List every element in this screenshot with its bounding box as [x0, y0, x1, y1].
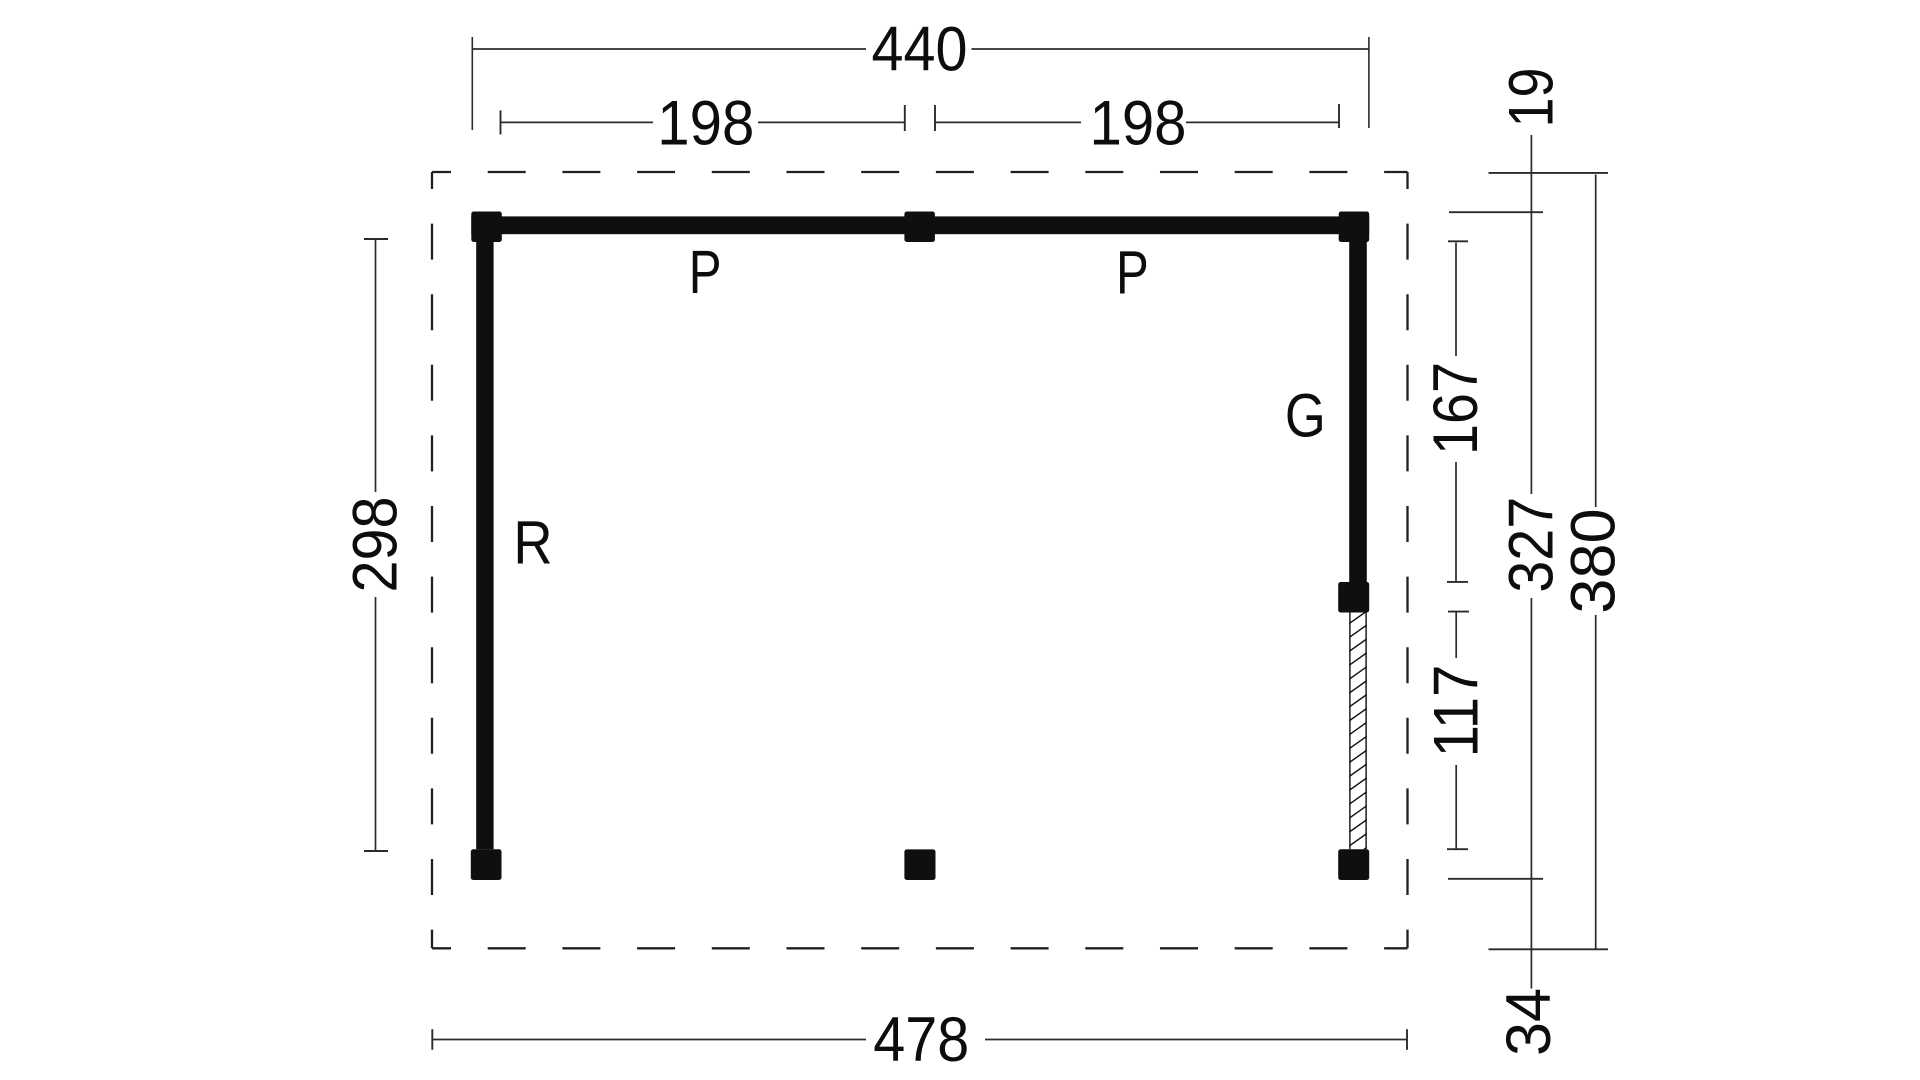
- svg-text:380: 380: [1559, 508, 1629, 613]
- svg-text:478: 478: [873, 1005, 969, 1075]
- svg-text:P: P: [1116, 239, 1149, 307]
- svg-text:198: 198: [657, 88, 754, 158]
- svg-text:P: P: [689, 238, 722, 306]
- svg-text:R: R: [513, 509, 552, 577]
- svg-text:167: 167: [1421, 362, 1491, 455]
- svg-text:G: G: [1285, 382, 1326, 450]
- svg-text:327: 327: [1497, 497, 1567, 593]
- svg-text:440: 440: [872, 14, 968, 84]
- svg-text:198: 198: [1090, 88, 1187, 158]
- svg-text:34: 34: [1494, 988, 1564, 1056]
- svg-text:117: 117: [1422, 665, 1492, 758]
- svg-text:19: 19: [1496, 68, 1566, 128]
- svg-text:298: 298: [340, 497, 410, 593]
